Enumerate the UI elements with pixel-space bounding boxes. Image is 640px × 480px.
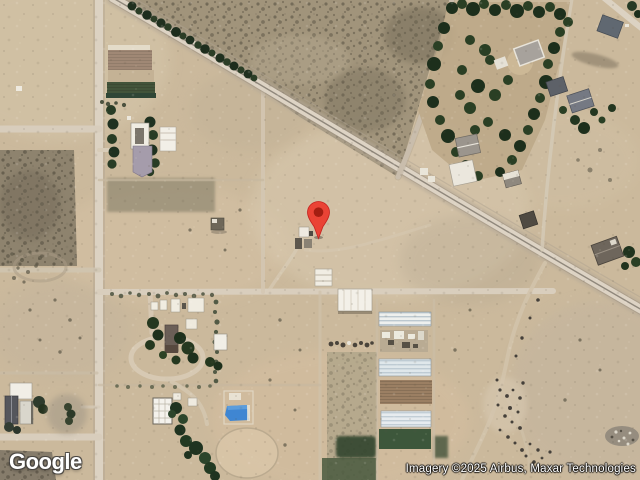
satellite-imagery — [0, 0, 640, 480]
imagery-attribution: Imagery ©2025 Airbus, Maxar Technologies — [406, 463, 636, 475]
map-canvas[interactable]: Google Imagery ©2025 Airbus, Maxar Techn… — [0, 0, 640, 480]
grain-overlay — [0, 0, 640, 480]
pin-core — [314, 207, 324, 217]
google-logo[interactable]: Google — [9, 449, 82, 475]
location-pin-icon[interactable] — [306, 200, 331, 240]
pin-body — [308, 202, 330, 239]
